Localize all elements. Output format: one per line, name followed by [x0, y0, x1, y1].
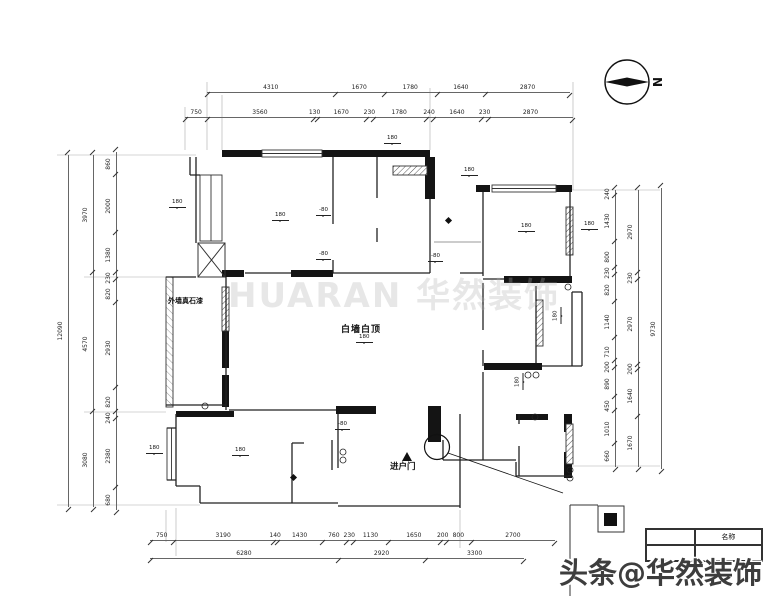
dim-segment: 2700 — [471, 529, 555, 541]
dim-chain-left-mid: 397045703080 — [82, 155, 94, 507]
dim-segment: 2970 — [627, 190, 639, 275]
elevation-mark: 180 — [461, 168, 478, 176]
dim-value: 1430 — [292, 533, 307, 539]
dim-segment: 1670 — [317, 106, 366, 118]
dim-segment: 1380 — [105, 235, 117, 275]
dim-segment: 1140 — [604, 304, 616, 341]
dim-value: 1780 — [403, 85, 418, 91]
dim-value: 1380 — [106, 247, 112, 262]
dim-value: 12090 — [58, 321, 64, 340]
elevation-mark: 180 — [518, 224, 535, 232]
dim-value: 2920 — [374, 551, 389, 557]
dim-segment: 4310 — [207, 81, 335, 93]
dim-segment: 4570 — [82, 275, 94, 413]
dim-segment: 2870 — [485, 81, 570, 93]
dim-chain-right-outer: 9730 — [650, 188, 662, 469]
dim-value: 2870 — [520, 85, 535, 91]
dim-segment: 1640 — [627, 372, 639, 419]
dim-value: 680 — [106, 494, 112, 505]
dim-segment: 9730 — [650, 188, 662, 469]
dim-value: 1640 — [449, 110, 464, 116]
dim-segment: 1010 — [604, 413, 616, 446]
dim-value: 1640 — [628, 388, 634, 403]
dim-value: 1130 — [363, 533, 378, 539]
dim-segment: 1640 — [433, 106, 482, 118]
dim-value: 3970 — [83, 207, 89, 222]
dim-value: 2000 — [106, 198, 112, 213]
dim-segment: 1780 — [384, 81, 437, 93]
dim-value: 1670 — [628, 435, 634, 450]
dim-value: 800 — [453, 533, 464, 539]
elevation-mark: -80 — [316, 208, 331, 216]
north-arrow-icon — [605, 60, 649, 104]
dim-chain-right-mid: 2970230297020016401670 — [627, 190, 639, 467]
elevation-mark: -80 — [335, 422, 350, 430]
entry-door-arrow-icon — [402, 447, 412, 461]
dim-value: 820 — [106, 288, 112, 299]
dim-value: 1670 — [334, 110, 349, 116]
dim-chain-bottom-inner: 75031901401430760230113016502008002700 — [150, 529, 555, 541]
dim-value: 1780 — [392, 110, 407, 116]
dim-segment: 1430 — [604, 198, 616, 244]
elevation-mark: 180 — [169, 200, 186, 208]
dim-chain-top-inner: 75035601301670230178024016402302870 — [185, 106, 573, 118]
dim-value: 4570 — [83, 337, 89, 352]
dim-segment: 3300 — [425, 547, 524, 559]
dim-value: 450 — [605, 400, 611, 411]
dim-value: 9730 — [651, 321, 657, 336]
dim-segment: 3080 — [82, 414, 94, 507]
dim-value: 6280 — [236, 551, 251, 557]
dim-value: 2970 — [628, 225, 634, 240]
dim-segment: 1670 — [627, 419, 639, 467]
dim-chain-left-inner: 8602000138023082029308202402380680 — [105, 152, 117, 510]
dim-chain-right-inner: 240143080023082011407102008904501010660 — [604, 190, 616, 467]
elevation-mark: 180 — [146, 446, 163, 454]
title-block-header: 名称 — [695, 529, 762, 545]
entry-door-label: 进户门 — [390, 460, 416, 472]
elevation-mark: 180 — [232, 448, 249, 456]
north-label: N — [650, 77, 664, 87]
door-callout — [425, 435, 564, 494]
watermark-center: HUARAN 华然装饰 — [228, 268, 560, 317]
dim-value: 860 — [106, 159, 112, 170]
dim-segment: 230 — [366, 106, 373, 118]
dim-value: 2970 — [628, 316, 634, 331]
elevation-mark: -80 — [316, 252, 331, 260]
dim-chain-left-outer: 12090 — [57, 155, 69, 507]
dim-value: 1010 — [605, 422, 611, 437]
elevation-mark: 180 — [581, 222, 598, 230]
dim-segment: 3970 — [82, 155, 94, 275]
dim-segment: 760 — [322, 529, 346, 541]
dim-value: 1670 — [352, 85, 367, 91]
dim-value: 820 — [605, 285, 611, 296]
dim-segment: 1670 — [335, 81, 384, 93]
floor-plan-page: HUARAN 华然装饰 头条@华然装饰 N 白墙白顶 180 外墙真石漆 进户门… — [0, 0, 763, 596]
dim-value: 2380 — [106, 448, 112, 463]
dim-segment: 3190 — [173, 529, 273, 541]
dim-value: 4310 — [263, 85, 278, 91]
dim-value: 1650 — [406, 533, 421, 539]
dim-value: 820 — [106, 397, 112, 408]
exterior-wall-label: 外墙真石漆 — [168, 296, 203, 306]
dim-value: 3300 — [467, 551, 482, 557]
dim-segment: 2920 — [338, 547, 425, 559]
dim-value: 1640 — [453, 85, 468, 91]
dim-segment: 1130 — [353, 529, 388, 541]
dim-value: 660 — [605, 451, 611, 462]
dim-value: 760 — [328, 533, 339, 539]
elevation-mark: 180 — [516, 374, 524, 391]
center-room-level: 180 — [356, 335, 373, 343]
detail-box-fill — [604, 513, 617, 526]
dim-segment: 230 — [346, 529, 353, 541]
dim-segment: 2930 — [105, 305, 117, 390]
dim-segment: 12090 — [57, 155, 69, 507]
dim-segment: 240 — [426, 106, 433, 118]
title-block-cell — [646, 529, 695, 545]
dim-value: 3190 — [216, 533, 231, 539]
dim-chain-bottom-outer: 628029203300 — [150, 547, 524, 559]
dim-segment: 2970 — [627, 282, 639, 367]
dim-segment: 1780 — [373, 106, 426, 118]
dim-value: 3560 — [252, 110, 267, 116]
dim-value: 750 — [190, 110, 201, 116]
dim-segment: 2380 — [105, 421, 117, 490]
dim-segment: 230 — [481, 106, 488, 118]
dim-segment: 1640 — [437, 81, 486, 93]
dim-segment: 680 — [105, 490, 117, 510]
dim-segment: 2870 — [488, 106, 573, 118]
elevation-mark: 180 — [272, 213, 289, 221]
elevation-mark: 180 — [384, 136, 401, 144]
dim-value: 2930 — [106, 340, 112, 355]
elevation-mark: -80 — [428, 254, 443, 262]
dim-value: 750 — [156, 533, 167, 539]
dim-value: 890 — [605, 378, 611, 389]
dim-segment: 2000 — [105, 177, 117, 235]
dim-segment: 1650 — [388, 529, 439, 541]
dim-value: 2700 — [505, 533, 520, 539]
dim-value: 710 — [605, 346, 611, 357]
dim-segment: 6280 — [150, 547, 338, 559]
dim-chain-top-outer: 43101670178016402870 — [207, 81, 570, 93]
dim-value: 800 — [605, 251, 611, 262]
dim-segment: 800 — [446, 529, 471, 541]
watermark-bottom: 头条@华然装饰 — [559, 550, 762, 592]
dim-value: 2870 — [523, 110, 538, 116]
dim-segment: 750 — [185, 106, 207, 118]
dim-segment: 750 — [150, 529, 173, 541]
dim-segment: 660 — [604, 446, 616, 467]
dim-value: 1140 — [605, 314, 611, 329]
shaft-x-box — [198, 243, 225, 277]
dim-segment: 1430 — [277, 529, 322, 541]
dim-segment: 3560 — [207, 106, 312, 118]
dim-value: 1430 — [605, 213, 611, 228]
dim-value: 3080 — [83, 453, 89, 468]
